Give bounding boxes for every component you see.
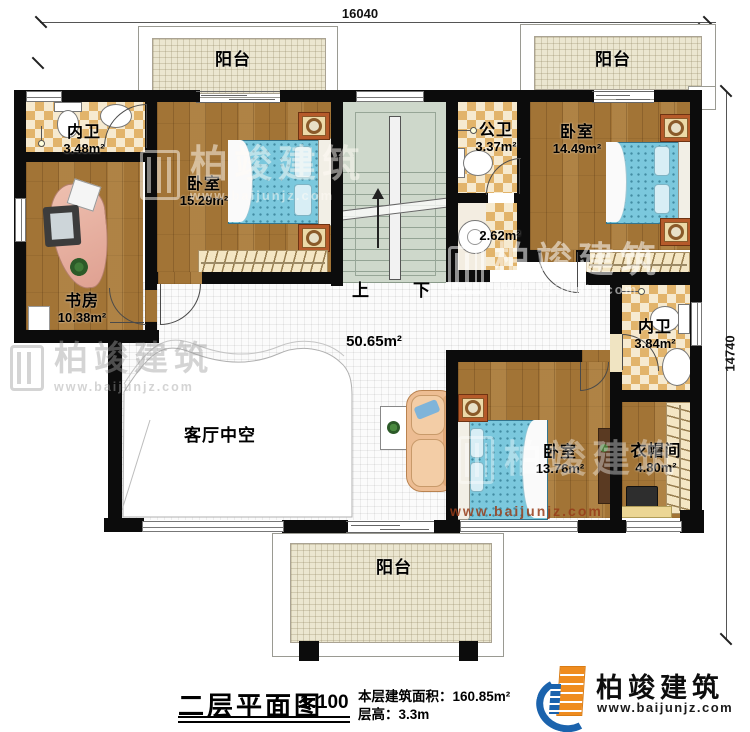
wall (610, 390, 702, 402)
light-pull-line (41, 126, 42, 140)
sliding-door (592, 91, 654, 103)
tv-stand (380, 406, 408, 450)
bed-pillow (470, 428, 484, 458)
room-label-public-bath: 公卫 3.37m² (456, 122, 536, 154)
balcony-post (459, 641, 478, 661)
wall (446, 90, 458, 282)
room-label-cloakroom: 衣帽间 4.80m² (606, 443, 706, 475)
brand-building-icon (549, 684, 561, 714)
wall (446, 193, 488, 203)
nightstand (660, 218, 692, 246)
door-opening (158, 272, 202, 284)
room-label-bedroom-top-right: 卧室 14.49m² (527, 124, 627, 156)
window (356, 91, 424, 102)
window (15, 198, 26, 242)
stair-arrow-icon (372, 188, 384, 199)
door-leaf (160, 284, 161, 324)
plan-height-note: 层高：3.3m (358, 706, 429, 723)
stair-rail (389, 116, 401, 280)
wall (680, 510, 704, 533)
bed-pillow (654, 146, 670, 176)
plant-icon (387, 421, 400, 434)
wall (108, 330, 122, 532)
wardrobe (198, 250, 328, 274)
sink-icon (662, 348, 692, 386)
window (460, 521, 578, 532)
room-label-balcony-bottom: 阳台 (354, 558, 434, 577)
room-label-living-void: 客厅中空 (160, 426, 280, 445)
title-underline (178, 716, 350, 723)
wall (578, 520, 626, 533)
nightstand (298, 112, 330, 140)
room-label-wash-area: 2.62m² (468, 229, 532, 244)
stair-direction-line (377, 198, 379, 248)
nightstand (660, 114, 692, 142)
room-label-balcony-top-left: 阳台 (193, 50, 273, 69)
door-leaf (519, 158, 520, 194)
shelf (618, 506, 672, 518)
watermark-url: www.baijunjz.com (450, 503, 603, 519)
room-label-bedroom-bottom: 卧室 13.76m² (510, 444, 610, 476)
room-label-bedroom-top-left: 卧室 15.29m² (154, 176, 254, 208)
window (26, 91, 62, 102)
wall (434, 520, 460, 533)
nightstand (458, 394, 488, 422)
bed-pillow (294, 184, 312, 216)
bed-pillow (294, 146, 312, 178)
room-label-bath-right: 内卫 3.84m² (615, 319, 695, 351)
sliding-door (346, 521, 434, 533)
plant-icon (70, 258, 88, 276)
window (142, 521, 284, 532)
wall (331, 90, 343, 286)
wall (446, 350, 582, 362)
room-label-balcony-top-right: 阳台 (573, 50, 653, 69)
stair-up-label: 上 (351, 281, 371, 300)
sliding-door (196, 91, 280, 103)
door-leaf (577, 252, 578, 292)
brand-website: www.baijunjz.com (597, 700, 733, 715)
window (626, 521, 682, 532)
room-label-study: 书房 10.38m² (32, 293, 132, 325)
balcony-post (299, 641, 319, 661)
monitor-screen (50, 212, 74, 239)
sofa-cushion (411, 439, 445, 487)
room-label-bath-top-left: 内卫 3.48m² (44, 124, 124, 156)
nightstand (298, 224, 330, 252)
floor-plan-canvas: 16040 14740 (0, 0, 750, 732)
plan-area-note: 本层建筑面积：160.85m² (358, 688, 510, 705)
plan-scale: 1:100 (300, 692, 349, 714)
bed-pillow (470, 462, 484, 492)
wall (14, 330, 159, 343)
door-leaf (580, 362, 581, 390)
wall (610, 272, 622, 532)
door-opening (582, 350, 610, 362)
wall (446, 270, 490, 282)
tv (626, 486, 658, 508)
light-pull-icon (638, 288, 645, 295)
bed-pillow (654, 184, 670, 214)
wall (104, 518, 144, 532)
wall (282, 520, 348, 533)
wall (586, 272, 702, 285)
brand-building-icon (556, 666, 585, 716)
room-label-hall-area: 50.65m² (334, 334, 414, 351)
door-leaf (146, 104, 147, 148)
monitor (43, 205, 82, 247)
door-opening (145, 290, 157, 322)
stair-down-label: 下 (412, 281, 432, 300)
